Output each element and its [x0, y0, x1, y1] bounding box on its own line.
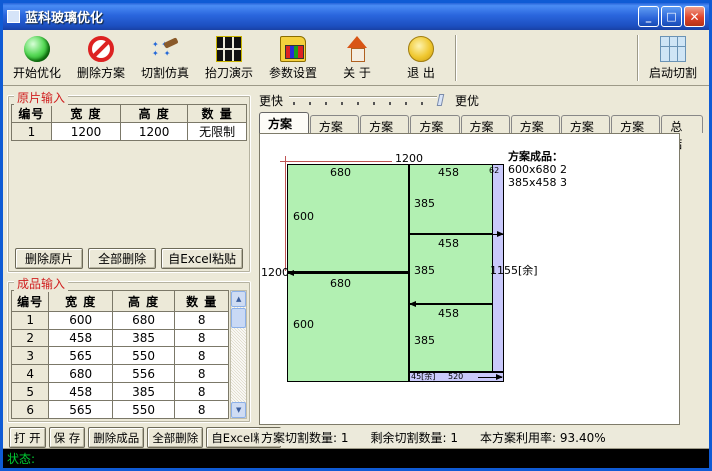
toolbar-button-label: 删除方案	[77, 64, 125, 81]
dimension-label: 600	[293, 319, 314, 330]
delete-all-sheets-button[interactable]: 全部删除	[88, 248, 156, 269]
origin-cross-icon	[280, 156, 291, 167]
plan-tab[interactable]: 方案8	[611, 115, 660, 133]
dimension-label: 458	[438, 167, 459, 178]
app-icon	[7, 10, 20, 23]
dimension-label: 45[余]	[411, 373, 435, 381]
better-label: 更优	[455, 92, 479, 109]
table-row[interactable]: 24583858	[12, 329, 229, 347]
table-cell[interactable]: 无限制	[188, 123, 247, 141]
app-window: 蓝科玻璃优化 _ □ ✕ 开始优化 删除方案	[0, 0, 712, 471]
start-cutting-button[interactable]: 启动切割	[641, 32, 705, 84]
remaining-cut-count: 剩余切割数量: 1	[371, 429, 459, 446]
product-table-scrollbar[interactable]: ▲ ▼	[230, 290, 247, 419]
toolbar-button[interactable]: 抬刀演示	[197, 32, 261, 84]
sheet-input-group: 原片输入 编号宽 度高 度数 量 112001200无限制 删除原片 全部删除 …	[7, 95, 251, 273]
toolbar-button-label: 参数设置	[269, 64, 317, 81]
slider-thumb[interactable]	[437, 94, 445, 106]
toolbar-button-label: 退 出	[407, 64, 435, 81]
toolbar-button-icon	[24, 36, 50, 62]
table-row[interactable]: 54583858	[12, 383, 229, 401]
product-input-title: 成品输入	[14, 275, 68, 292]
dimension-label: 385	[414, 335, 435, 346]
plan-tab[interactable]: 方案7	[561, 115, 610, 133]
slider-track[interactable]	[289, 96, 437, 98]
toolbar-button[interactable]: 开始优化	[5, 32, 69, 84]
plan-cut-count: 方案切割数量: 1	[261, 429, 349, 446]
sheet-input-title: 原片输入	[14, 89, 68, 106]
legend-item: 600x680 2	[508, 163, 567, 176]
table-cell[interactable]: 680	[49, 365, 113, 383]
toolbar-button-label: 开始优化	[13, 64, 61, 81]
scrollbar-thumb[interactable]	[231, 308, 246, 328]
header-cell: 宽 度	[51, 105, 120, 123]
table-cell[interactable]: 8	[174, 365, 228, 383]
status-bar: 状态:	[3, 448, 709, 468]
toolbar-button[interactable]: 切割仿真	[133, 32, 197, 84]
toolbar-button-icon	[152, 36, 178, 62]
plan-info-bar: 方案切割数量: 1 剩余切割数量: 1 本方案利用率: 93.40%	[259, 428, 680, 446]
table-cell[interactable]: 550	[113, 347, 175, 365]
table-row[interactable]: 16006808	[12, 311, 229, 329]
header-cell: 编号	[12, 291, 49, 311]
dimension-label: 680	[330, 167, 351, 178]
toolbar-button-icon	[216, 36, 242, 62]
toolbar-button-icon	[408, 36, 434, 62]
faster-label: 更快	[259, 92, 283, 109]
table-cell[interactable]: 385	[113, 383, 175, 401]
product-input-table[interactable]: 编号宽 度高 度数 量 1600680824583858356555084680…	[11, 290, 229, 419]
table-cell[interactable]: 458	[49, 383, 113, 401]
header-cell: 编号	[12, 105, 52, 123]
table-cell[interactable]: 8	[174, 329, 228, 347]
left-panel: 原片输入 编号宽 度高 度数 量 112001200无限制 删除原片 全部删除 …	[3, 86, 253, 448]
toolbar-button[interactable]: 关 于	[325, 32, 389, 84]
delete-all-products-button[interactable]: 全部删除	[147, 427, 203, 448]
header-cell: 宽 度	[49, 291, 113, 311]
paste-from-excel-button[interactable]: 自Excel粘贴	[161, 248, 243, 269]
table-cell[interactable]: 1	[12, 123, 52, 141]
product-input-group: 成品输入 编号宽 度高 度数 量 16006808245838583565550…	[7, 281, 251, 423]
cut-arrow	[410, 234, 503, 235]
cut-arrow	[478, 377, 502, 378]
plan-tab[interactable]: 方案6	[511, 115, 560, 133]
dimension-label: 385	[414, 265, 435, 276]
toolbar: 开始优化 删除方案 切割仿真 抬刀演示	[3, 30, 709, 86]
table-row[interactable]: 112001200无限制	[12, 123, 247, 141]
table-cell[interactable]: 565	[49, 401, 113, 419]
plan-tab[interactable]: 方案1	[259, 112, 309, 133]
slider-ticks	[293, 102, 433, 105]
right-panel: 更快 更优 方案1 方案2 方案3 方案4 方案	[253, 86, 709, 448]
table-cell[interactable]: 600	[49, 311, 113, 329]
plan-tab[interactable]: 方案2	[310, 115, 359, 133]
dimension-label: 1200	[261, 267, 289, 278]
delete-sheet-button[interactable]: 删除原片	[15, 248, 83, 269]
table-cell[interactable]: 8	[174, 347, 228, 365]
plan-tabs: 方案1 方案2 方案3 方案4 方案5 方案6 方案7 方案8 总结	[259, 112, 703, 133]
cut-arrow	[410, 304, 492, 305]
sheet-input-table[interactable]: 编号宽 度高 度数 量 112001200无限制	[11, 104, 247, 141]
table-cell[interactable]: 1200	[51, 123, 120, 141]
table-cell[interactable]: 5	[12, 383, 49, 401]
plan-tab[interactable]: 方案3	[360, 115, 409, 133]
table-cell[interactable]: 550	[113, 401, 175, 419]
legend-item: 385x458 3	[508, 176, 567, 189]
toolbar-button[interactable]: 删除方案	[69, 32, 133, 84]
table-cell[interactable]: 8	[174, 401, 228, 419]
start-cutting-label: 启动切割	[649, 64, 697, 81]
toolbar-separator	[637, 35, 639, 81]
status-label: 状态:	[7, 450, 35, 467]
toolbar-button-icon	[280, 36, 306, 62]
dimension-label: 458	[438, 238, 459, 249]
save-button[interactable]: 保 存	[49, 427, 86, 448]
plan-tab[interactable]: 方案5	[461, 115, 510, 133]
table-cell[interactable]: 6	[12, 401, 49, 419]
toolbar-button[interactable]: 退 出	[389, 32, 453, 84]
utilization-rate: 本方案利用率: 93.40%	[480, 429, 606, 446]
header-cell: 高 度	[113, 291, 175, 311]
toolbar-button-label: 关 于	[343, 64, 371, 81]
table-cell[interactable]: 8	[174, 383, 228, 401]
window-title: 蓝科玻璃优化	[25, 7, 638, 26]
table-cell[interactable]: 4	[12, 365, 49, 383]
plan-tab[interactable]: 总结	[661, 115, 703, 133]
scroll-up-icon[interactable]: ▲	[231, 291, 246, 307]
dimension-label: 62	[489, 167, 499, 175]
scroll-down-icon[interactable]: ▼	[231, 402, 246, 418]
table-cell[interactable]: 3	[12, 347, 49, 365]
dimension-line	[290, 161, 392, 162]
dimension-label: 385	[414, 198, 435, 209]
header-cell: 高 度	[121, 105, 188, 123]
dimension-label: 458	[438, 308, 459, 319]
dimension-label: 1155[余]	[490, 265, 538, 276]
cutting-canvas[interactable]: 方案成品： 600x680 2385x458 3 120068045862385…	[259, 133, 680, 425]
toolbar-button-icon	[344, 36, 370, 62]
table-cell[interactable]: 8	[174, 311, 228, 329]
dimension-line	[285, 167, 286, 271]
minimize-button[interactable]: _	[638, 6, 659, 27]
plan-products-legend: 方案成品： 600x680 2385x458 3	[508, 150, 567, 189]
toolbar-separator	[455, 35, 457, 81]
dimension-label: 520	[448, 373, 463, 381]
toolbar-button-icon	[88, 36, 114, 62]
table-row[interactable]: 35655508	[12, 347, 229, 365]
table-cell[interactable]: 385	[113, 329, 175, 347]
table-row[interactable]: 65655508	[12, 401, 229, 419]
header-cell: 数 量	[188, 105, 247, 123]
table-cell[interactable]: 2	[12, 329, 49, 347]
title-bar: 蓝科玻璃优化 _ □ ✕	[3, 3, 709, 30]
speed-slider[interactable]	[289, 92, 449, 108]
table-cell[interactable]: 1200	[121, 123, 188, 141]
product-table-header: 编号宽 度高 度数 量	[12, 291, 229, 311]
open-button[interactable]: 打 开	[9, 427, 46, 448]
toolbar-button-label: 抬刀演示	[205, 64, 253, 81]
legend-title: 方案成品：	[508, 150, 567, 163]
dimension-label: 680	[330, 278, 351, 289]
dimension-label: 1200	[395, 153, 423, 164]
cut-arrow	[288, 273, 409, 274]
dimension-label: 600	[293, 211, 314, 222]
delete-product-button[interactable]: 删除成品	[88, 427, 144, 448]
table-row[interactable]: 46805568	[12, 365, 229, 383]
toolbar-button[interactable]: 参数设置	[261, 32, 325, 84]
close-button[interactable]: ✕	[684, 6, 705, 27]
maximize-button[interactable]: □	[661, 6, 682, 27]
table-cell[interactable]: 556	[113, 365, 175, 383]
sheet-table-header: 编号宽 度高 度数 量	[12, 105, 247, 123]
header-cell: 数 量	[174, 291, 228, 311]
table-cell[interactable]: 458	[49, 329, 113, 347]
table-cell[interactable]: 565	[49, 347, 113, 365]
table-cell[interactable]: 680	[113, 311, 175, 329]
plan-tab[interactable]: 方案4	[410, 115, 459, 133]
table-cell[interactable]: 1	[12, 311, 49, 329]
start-cutting-icon	[660, 36, 686, 62]
speed-slider-row: 更快 更优	[259, 90, 703, 110]
toolbar-button-label: 切割仿真	[141, 64, 189, 81]
